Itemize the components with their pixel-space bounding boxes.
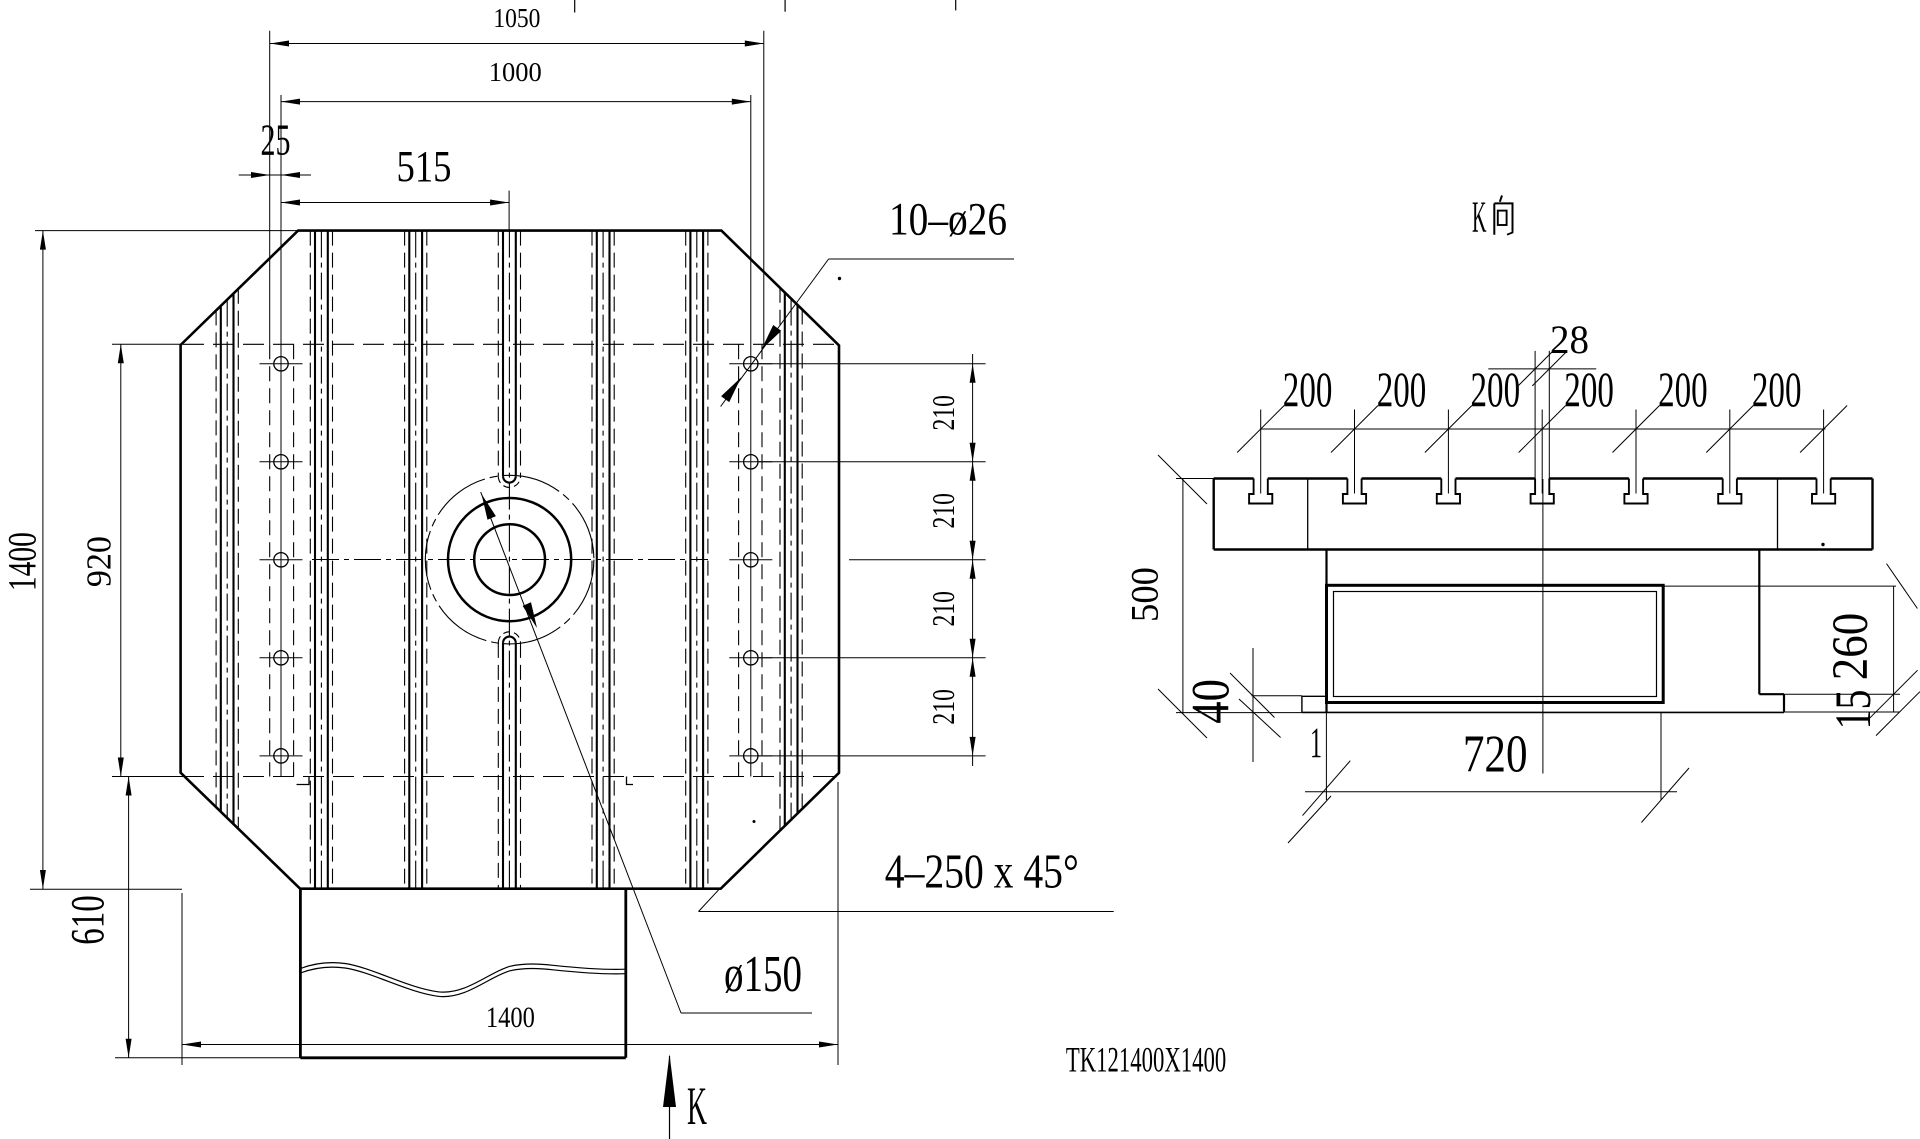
svg-text:200: 200 xyxy=(1658,361,1708,417)
svg-text:515: 515 xyxy=(397,142,452,191)
svg-text:200: 200 xyxy=(1377,361,1427,417)
svg-text:610: 610 xyxy=(62,895,115,945)
svg-text:210: 210 xyxy=(925,591,961,627)
svg-text:200: 200 xyxy=(1752,361,1802,417)
svg-text:720: 720 xyxy=(1463,726,1528,784)
svg-text:210: 210 xyxy=(925,493,961,529)
svg-text:TK121400X1400: TK121400X1400 xyxy=(1066,1040,1226,1080)
svg-text:200: 200 xyxy=(1283,361,1333,417)
svg-text:920: 920 xyxy=(80,536,119,587)
svg-text:4–250 x 45°: 4–250 x 45° xyxy=(885,844,1079,899)
svg-text:260: 260 xyxy=(1823,613,1879,680)
svg-text:1000: 1000 xyxy=(489,57,542,87)
svg-text:1400: 1400 xyxy=(0,532,45,591)
svg-text:K: K xyxy=(687,1076,707,1136)
svg-text:210: 210 xyxy=(925,395,961,431)
svg-text:15: 15 xyxy=(1826,690,1882,730)
svg-text:28: 28 xyxy=(1550,317,1589,362)
svg-text:10–ø26: 10–ø26 xyxy=(889,194,1007,246)
svg-text:500: 500 xyxy=(1124,567,1167,622)
svg-text:K: K xyxy=(1472,192,1487,241)
svg-text:1400: 1400 xyxy=(486,1001,535,1034)
svg-text:25: 25 xyxy=(261,116,291,165)
svg-text:1: 1 xyxy=(1310,720,1322,767)
svg-text:210: 210 xyxy=(925,689,961,725)
svg-text:1050: 1050 xyxy=(493,3,540,33)
svg-text:ø150: ø150 xyxy=(724,946,802,1003)
svg-text:40: 40 xyxy=(1180,679,1240,724)
